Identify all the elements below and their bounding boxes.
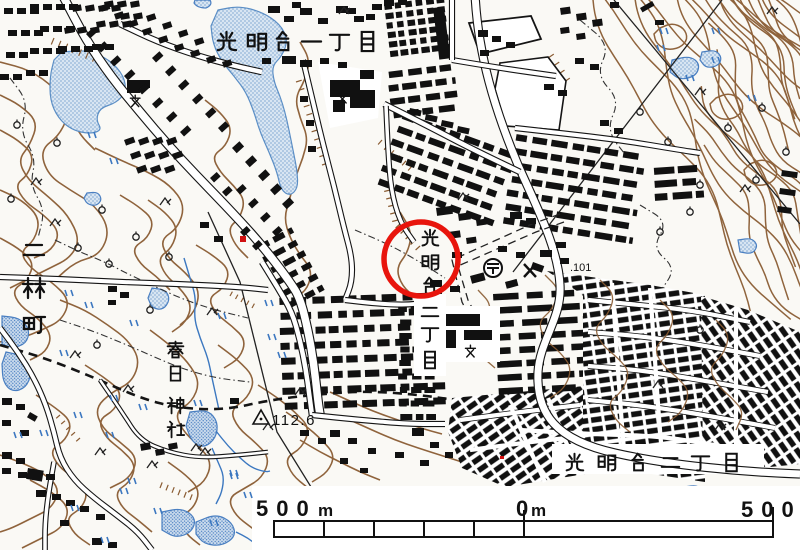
svg-text:500: 500 <box>256 496 317 521</box>
svg-text:m: m <box>531 501 546 520</box>
svg-text:m: m <box>318 501 333 520</box>
svg-text:.101: .101 <box>570 262 591 274</box>
svg-text:0: 0 <box>516 496 528 521</box>
svg-text:500: 500 <box>741 497 800 522</box>
svg-text:112.6: 112.6 <box>272 412 316 429</box>
